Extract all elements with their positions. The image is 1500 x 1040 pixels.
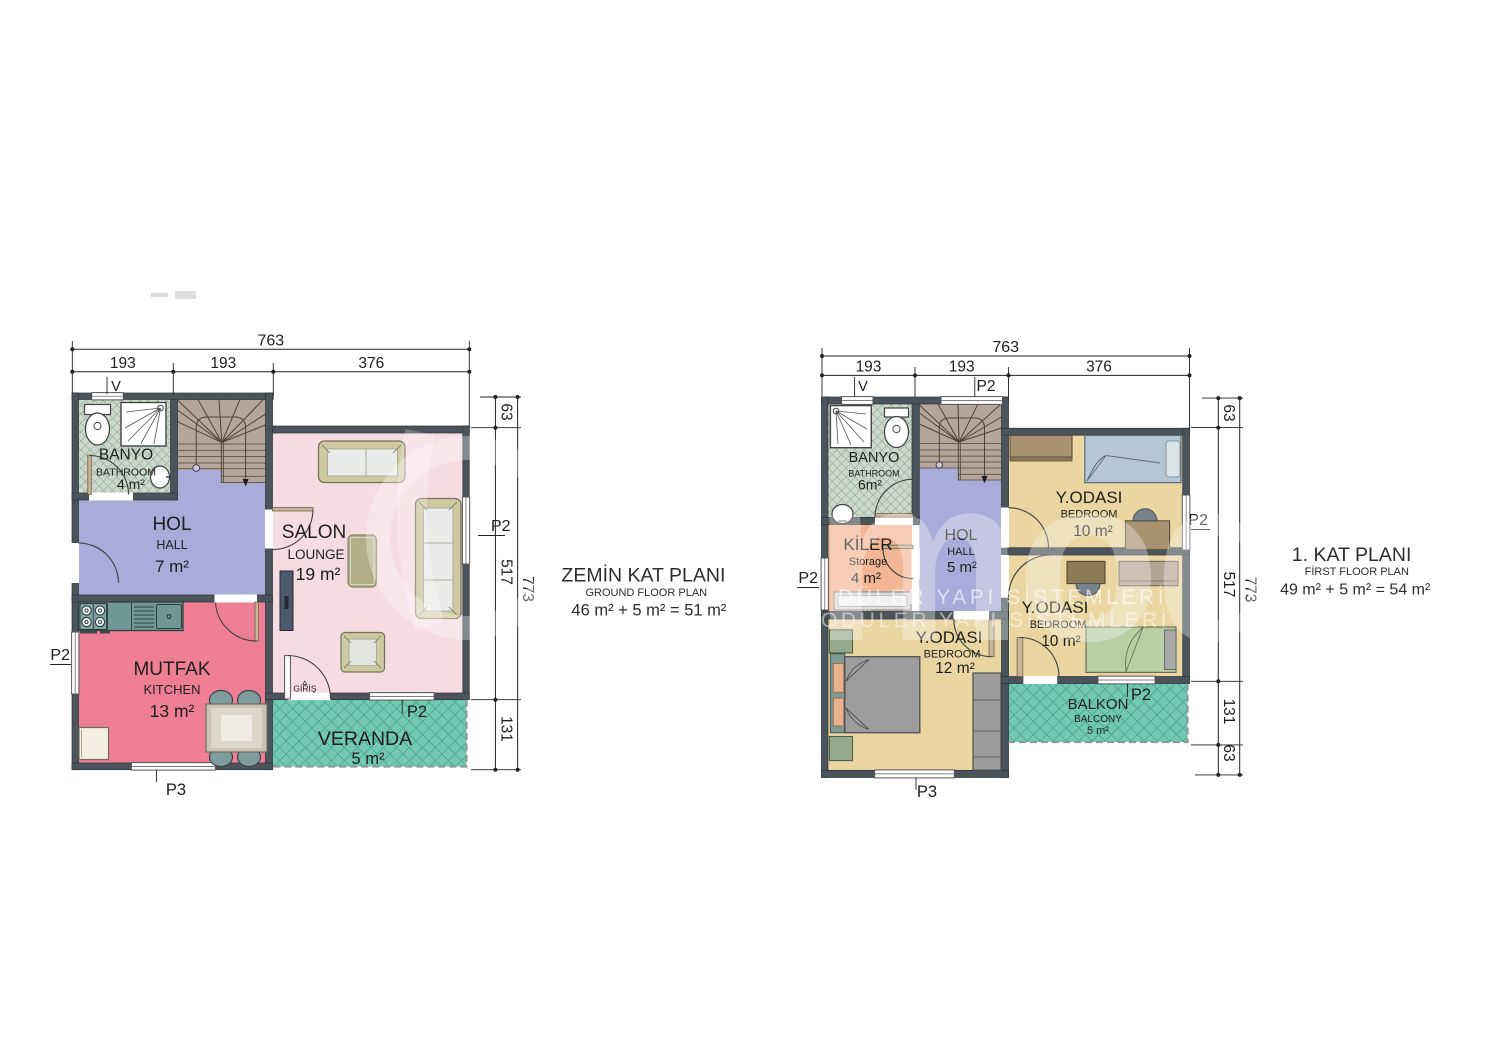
svg-text:ZEMİN KAT PLANI: ZEMİN KAT PLANI (561, 564, 725, 587)
svg-text:7 m²: 7 m² (155, 557, 189, 576)
svg-text:GROUND FLOOR PLAN: GROUND FLOOR PLAN (585, 587, 707, 599)
svg-text:763: 763 (257, 333, 284, 350)
svg-text:517: 517 (498, 559, 515, 585)
svg-text:P2: P2 (50, 647, 70, 664)
svg-text:P2: P2 (977, 378, 996, 395)
svg-text:19 m²: 19 m² (296, 564, 341, 584)
svg-text:V: V (111, 379, 121, 395)
svg-text:P3: P3 (166, 781, 186, 799)
svg-text:193: 193 (210, 355, 236, 372)
svg-text:MUTFAK: MUTFAK (133, 659, 210, 680)
svg-text:ODÜLER YAPI SİSTEMLERİ: ODÜLER YAPI SİSTEMLERİ (821, 609, 1170, 632)
svg-text:63: 63 (1220, 404, 1237, 421)
svg-text:63: 63 (498, 403, 515, 420)
svg-text:P2: P2 (407, 703, 427, 721)
svg-text:4 m²: 4 m² (117, 476, 145, 492)
svg-text:5 m²: 5 m² (352, 750, 386, 768)
svg-text:FİRST FLOOR PLAN: FİRST FLOOR PLAN (1305, 565, 1409, 578)
svg-text:1. KAT PLANI: 1. KAT PLANI (1292, 544, 1412, 566)
svg-text:13 m²: 13 m² (150, 701, 195, 721)
svg-text:V: V (858, 379, 868, 395)
svg-text:193: 193 (856, 359, 882, 376)
svg-text:DÜLER YAPI SİSTEMLERİ: DÜLER YAPI SİSTEMLERİ (838, 586, 1167, 609)
svg-text:63: 63 (1220, 744, 1237, 761)
svg-text:KITCHEN: KITCHEN (143, 682, 200, 697)
svg-text:LOUNGE: LOUNGE (287, 547, 344, 562)
svg-text:131: 131 (498, 716, 515, 742)
svg-text:BANYO: BANYO (99, 447, 153, 464)
svg-text:GİRİŞ: GİRİŞ (293, 684, 316, 694)
svg-text:49 m² + 5 m² = 54 m²: 49 m² + 5 m² = 54 m² (1280, 581, 1431, 598)
svg-text:P3: P3 (917, 783, 937, 801)
svg-text:376: 376 (358, 355, 384, 372)
svg-text:BALKON: BALKON (1068, 696, 1129, 713)
svg-text:376: 376 (1086, 359, 1112, 376)
svg-text:VERANDA: VERANDA (318, 728, 412, 750)
svg-text:5 m²: 5 m² (1087, 725, 1109, 737)
svg-text:P2: P2 (491, 518, 511, 535)
svg-text:46 m² + 5 m² = 51 m²: 46 m² + 5 m² = 51 m² (571, 602, 726, 620)
svg-text:193: 193 (949, 359, 975, 376)
svg-text:HOL: HOL (152, 514, 191, 535)
svg-text:763: 763 (992, 339, 1019, 356)
svg-text:BALCONY: BALCONY (1074, 714, 1122, 725)
svg-text:HALL: HALL (156, 538, 187, 552)
svg-text:131: 131 (1220, 699, 1237, 725)
svg-text:193: 193 (110, 355, 136, 372)
svg-text:SALON: SALON (282, 522, 346, 543)
